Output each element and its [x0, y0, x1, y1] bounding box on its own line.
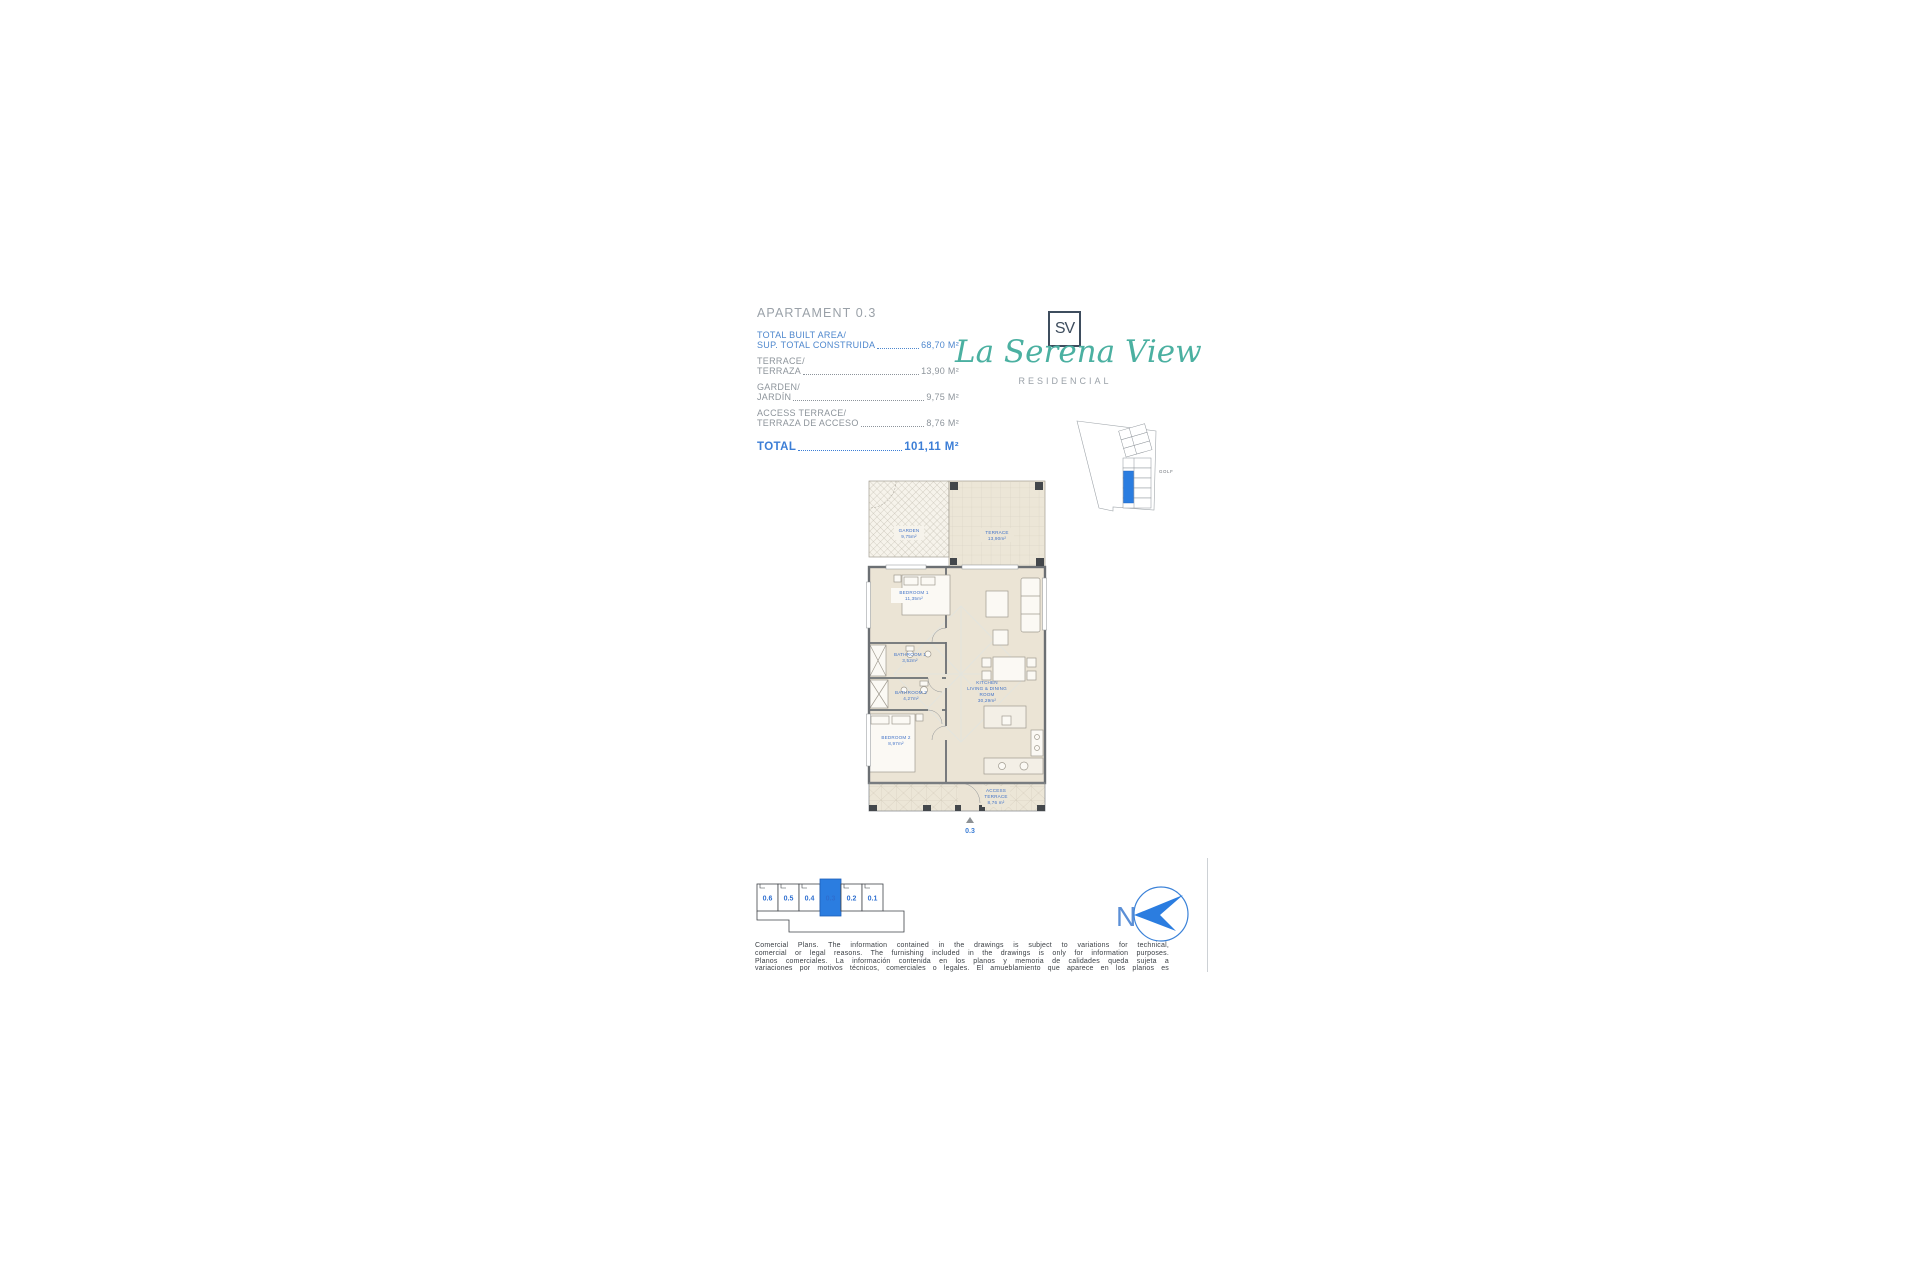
north-label: N — [1116, 901, 1136, 932]
plan-document-page: APARTAMENT 0.3 TOTAL BUILT AREA/ SUP. TO… — [0, 0, 1920, 1280]
brand-subtitle: RESIDENCIAL — [955, 376, 1175, 386]
room-label: GARDEN — [899, 528, 920, 533]
key-plan-unit-number: 0.4 — [805, 896, 815, 903]
dotted-leader — [793, 400, 924, 401]
total-label: TOTAL — [757, 441, 796, 453]
area-value: 8,76 M² — [926, 419, 959, 429]
area-label-es: TERRAZA DE ACCESO — [757, 419, 859, 429]
dotted-leader — [877, 348, 919, 349]
room-area: 3,52m² — [902, 658, 918, 663]
page-title: APARTAMENT 0.3 — [757, 306, 959, 320]
area-label-es: SUP. TOTAL CONSTRUIDA — [757, 341, 875, 351]
room-garden — [869, 481, 949, 557]
dotted-leader — [861, 426, 925, 427]
apartment-info-block: APARTAMENT 0.3 TOTAL BUILT AREA/ SUP. TO… — [757, 306, 959, 453]
area-value: 9,75 M² — [926, 393, 959, 403]
area-row-garden: GARDEN/ JARDÍN 9,75 M² — [757, 383, 959, 402]
key-plan-unit-number: 0.5 — [784, 896, 794, 903]
room-label: KITCHEN — [976, 680, 998, 685]
golf-label: GOLF — [1159, 469, 1173, 474]
area-row-total: TOTAL 101,11 M² — [757, 441, 959, 453]
room-area: 11,35m² — [905, 596, 923, 601]
room-terrace — [949, 481, 1045, 567]
area-row-access-terrace: ACCESS TERRACE/ TERRAZA DE ACCESO 8,76 M… — [757, 409, 959, 428]
area-label-es: JARDÍN — [757, 393, 791, 403]
total-value: 101,11 M² — [904, 441, 959, 453]
site-plan-unit-highlight — [1124, 471, 1134, 503]
room-area: 8,97m² — [888, 741, 904, 746]
area-row-terrace: TERRACE/ TERRAZA 13,90 M² — [757, 357, 959, 376]
unit-marker-label: 0.3 — [965, 828, 975, 835]
room-label: BEDROOM 1 — [899, 590, 929, 595]
room-area: 9,75m² — [901, 534, 917, 539]
dotted-leader — [803, 374, 919, 375]
key-plan-unit-number: 0.6 — [763, 896, 773, 903]
unit-marker-triangle-icon — [966, 817, 974, 823]
disclaimer-line: Planos comerciales. La información conte… — [755, 958, 1169, 966]
site-plan: GOLF — [1075, 413, 1210, 528]
disclaimer-line: comercial or legal reasons. The furnishi… — [755, 950, 1169, 958]
disclaimer: Comercial Plans. The information contain… — [755, 942, 1169, 973]
room-label: BATHROOM 2 — [895, 690, 927, 695]
room-label: ACCESS — [986, 788, 1006, 793]
room-area: 13,90m² — [988, 536, 1007, 541]
room-area: 8,76 m² — [988, 800, 1005, 805]
key-plan-unit-number-selected: 0.3 — [826, 896, 836, 903]
disclaimer-line: Comercial Plans. The information contain… — [755, 942, 1169, 950]
room-label: LIVING & DINING — [967, 686, 1007, 691]
room-label: BATHROOM 1 — [894, 652, 926, 657]
area-row-total-built: TOTAL BUILT AREA/ SUP. TOTAL CONSTRUIDA … — [757, 331, 959, 350]
brand-name: La Serena View — [955, 334, 1175, 370]
key-plan-unit-number: 0.2 — [847, 896, 857, 903]
area-label-es: TERRAZA — [757, 367, 801, 377]
page-edge-line — [1207, 858, 1208, 972]
site-plan-building-upper — [1119, 424, 1152, 457]
disclaimer-line: variaciones por motivos técnicos, comerc… — [755, 965, 1169, 973]
room-area: 30,29m² — [978, 698, 997, 703]
room-label: BEDROOM 2 — [881, 735, 911, 740]
room-label: TERRACE — [985, 530, 1008, 535]
dotted-leader — [798, 450, 902, 451]
area-value: 13,90 M² — [921, 367, 959, 377]
key-plan-unit-number: 0.1 — [868, 896, 878, 903]
floor-plan: GARDEN 9,75m² TERRACE 13,90m² BEDROOM 1 … — [866, 478, 1047, 836]
room-label: ROOM — [979, 692, 994, 697]
key-plan: 0.6 0.5 0.4 0.3 0.2 0.1 — [753, 872, 908, 938]
area-value: 68,70 M² — [921, 341, 959, 351]
compass-arrow-icon — [1134, 895, 1183, 931]
room-label: TERRACE — [984, 794, 1007, 799]
room-area: 4,27m² — [903, 696, 919, 701]
